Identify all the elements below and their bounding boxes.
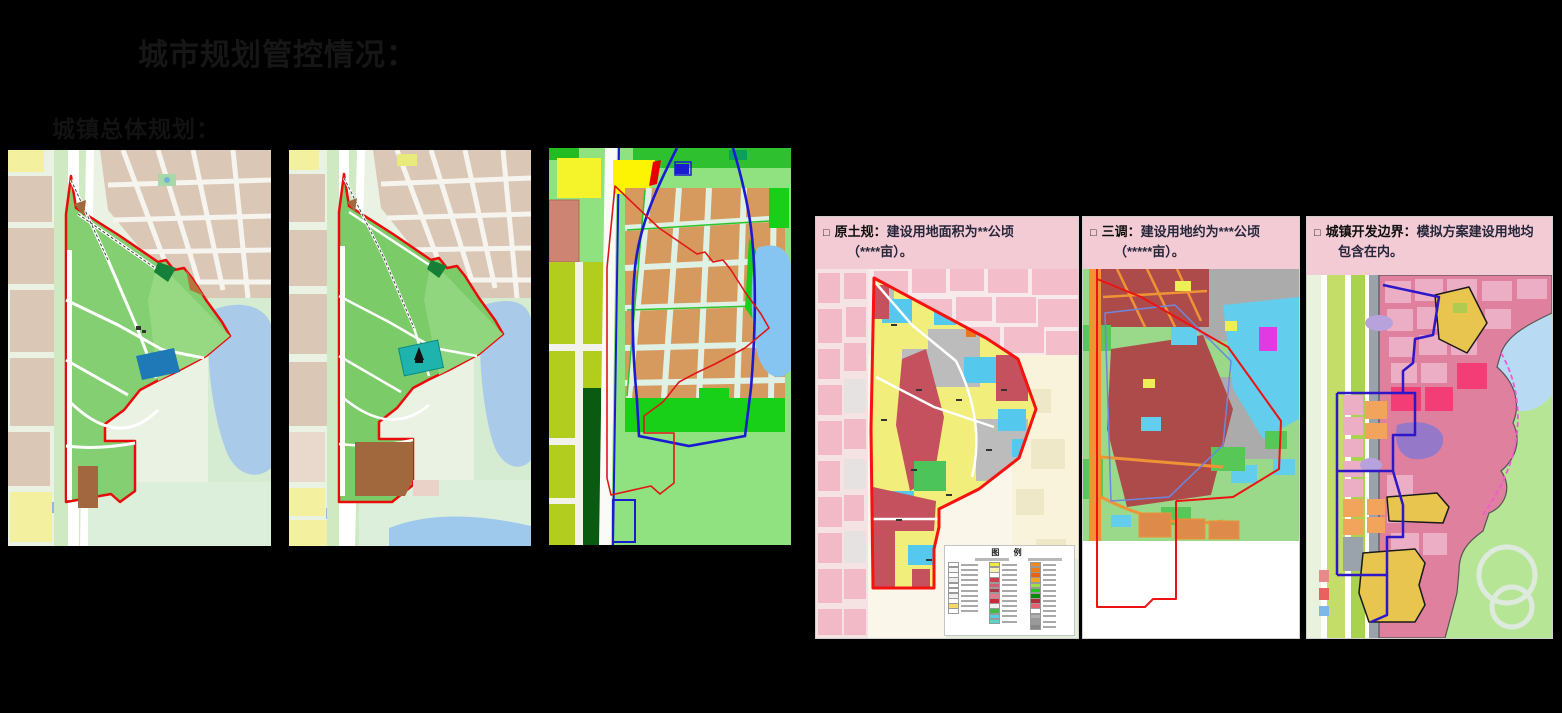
- legend-title: 图 例: [948, 548, 1071, 557]
- legend-entry-text: [1043, 595, 1056, 597]
- legend-entry-text: [1002, 584, 1017, 586]
- map-legend: 图 例: [944, 545, 1075, 636]
- panel-dev-boundary-map: □城镇开发边界：模拟方案建设用地均 包含在内。: [1306, 216, 1553, 639]
- square-bullet-icon: □: [823, 227, 830, 239]
- legend-entry-text: [961, 579, 978, 581]
- callout-text: 模拟方案建设用地均: [1417, 224, 1534, 239]
- legend-entry-text: [1043, 621, 1056, 623]
- legend-entry: [948, 609, 989, 614]
- legend-swatch-icon: [948, 608, 959, 614]
- legend-entry-text: [961, 569, 978, 571]
- legend-entry-text: [1043, 574, 1056, 576]
- callout-label: 原土规：: [835, 224, 887, 239]
- dev-boundary-map-image: [1307, 275, 1552, 638]
- legend-entry-text: [1002, 615, 1017, 617]
- master-plan-map-1-image: [8, 150, 271, 546]
- legend-entry-text: [1002, 590, 1017, 592]
- legend-entry: [1030, 624, 1071, 629]
- legend-entry-text: [1043, 600, 1056, 602]
- legend-entry-text: [1002, 574, 1017, 576]
- legend-entry-text: [1043, 626, 1056, 628]
- panel-original-landuse-plan: □原土规：建设用地面积为**公顷 （****亩）。: [815, 216, 1079, 639]
- legend-column: [948, 562, 989, 629]
- legend-entry-text: [1043, 579, 1056, 581]
- panel-master-plan-map-2: [289, 150, 531, 546]
- legend-entry-text: [961, 590, 978, 592]
- legend-subheaders: [966, 558, 1071, 561]
- legend-entry-text: [1043, 569, 1056, 571]
- callout-dev-boundary: □城镇开发边界：模拟方案建设用地均 包含在内。: [1307, 217, 1552, 275]
- callout-original-plan: □原土规：建设用地面积为**公顷 （****亩）。: [816, 217, 1078, 269]
- legend-entry-text: [1002, 621, 1017, 623]
- legend-entry-text: [1002, 595, 1017, 597]
- legend-entry-text: [1002, 605, 1017, 607]
- master-plan-map-2-image: [289, 150, 531, 546]
- third-survey-map-image: [1083, 269, 1299, 638]
- legend-column: [989, 562, 1030, 629]
- legend-swatch-icon: [1030, 624, 1041, 630]
- panel-third-survey-map: □三调：建设用地约为***公顷 （*****亩）。: [1082, 216, 1300, 639]
- callout-text: 建设用地面积为**公顷: [887, 224, 1014, 239]
- landuse-plan-map-image: [549, 148, 791, 545]
- legend-entry-text: [961, 605, 978, 607]
- legend-entry-text: [1002, 610, 1017, 612]
- callout-label: 城镇开发边界：: [1326, 224, 1417, 239]
- legend-entry-text: [1043, 564, 1056, 566]
- panel-master-plan-map-1: [8, 150, 271, 546]
- square-bullet-icon: □: [1314, 227, 1321, 239]
- panel-landuse-plan-map: [549, 148, 791, 545]
- square-bullet-icon: □: [1090, 227, 1097, 239]
- legend-entry-text: [961, 610, 978, 612]
- legend-entry-text: [1043, 610, 1056, 612]
- callout-third-survey: □三调：建设用地约为***公顷 （*****亩）。: [1083, 217, 1299, 269]
- callout-text-line2: （****亩）。: [823, 242, 1071, 262]
- legend-entry-text: [1002, 579, 1017, 581]
- slide-background: { "slide": { "title": "城市规划管控情况：", "subt…: [0, 0, 1562, 713]
- callout-text: 建设用地约为***公顷: [1141, 224, 1260, 239]
- legend-entry-text: [1002, 600, 1017, 602]
- legend-entry-text: [961, 574, 978, 576]
- legend-entry-text: [1043, 615, 1056, 617]
- page-title: 城市规划管控情况：: [138, 30, 417, 74]
- legend-entry-text: [961, 595, 978, 597]
- callout-text-line2: 包含在内。: [1314, 242, 1545, 262]
- section-subtitle: 城镇总体规划：: [52, 110, 220, 144]
- callout-text-line2: （*****亩）。: [1090, 242, 1292, 262]
- legend-entries: [948, 562, 1071, 629]
- legend-entry-text: [1002, 564, 1017, 566]
- legend-entry-text: [1043, 605, 1056, 607]
- legend-entry-text: [1043, 590, 1056, 592]
- legend-swatch-icon: [989, 619, 1000, 625]
- legend-entry-text: [961, 600, 978, 602]
- legend-entry: [989, 619, 1030, 624]
- legend-entry-text: [961, 564, 978, 566]
- legend-entry-text: [961, 584, 978, 586]
- callout-label: 三调：: [1102, 224, 1141, 239]
- legend-entry-text: [1043, 584, 1056, 586]
- legend-column: [1030, 562, 1071, 629]
- legend-entry-text: [1002, 569, 1017, 571]
